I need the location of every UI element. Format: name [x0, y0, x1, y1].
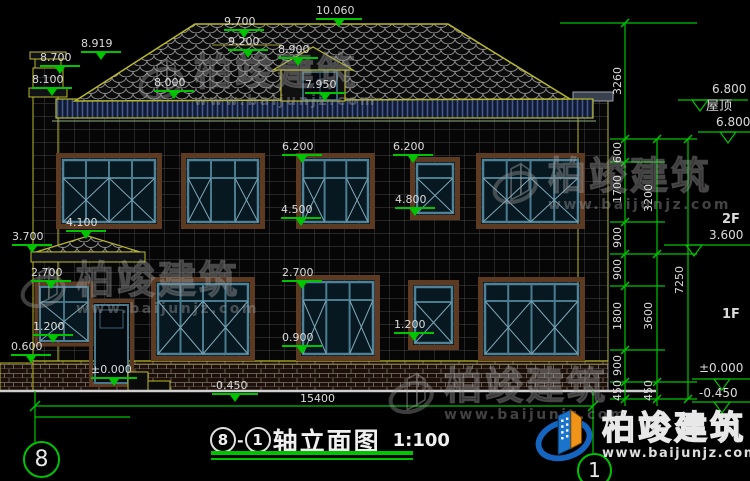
overall-dimension: 15400 — [300, 393, 335, 405]
chain-dim: 450 — [643, 380, 655, 401]
elevation-marker: -0.450 — [212, 380, 258, 407]
title-scale: 1:100 — [393, 430, 450, 451]
chain-dim: 600 — [612, 142, 624, 163]
floor-label: 2F — [722, 213, 740, 227]
watermark-brand: 柏竣建筑 — [444, 367, 627, 405]
window-2f-2 — [184, 156, 263, 227]
elevation-marker: 9.200 — [228, 36, 268, 63]
title-underline-thin — [211, 458, 413, 460]
elevation-marker: 4.100 — [66, 217, 106, 244]
elevation-marker: 8.100 — [32, 74, 72, 101]
axis-number: 8 — [35, 447, 49, 472]
chain-dim: 450 — [612, 380, 624, 401]
watermark-brand: 柏竣建筑 — [76, 261, 259, 299]
elevation-marker: 8.919 — [81, 38, 121, 65]
chain-dim: 900 — [612, 227, 624, 248]
title-underline — [211, 451, 413, 455]
elevation-marker: 2.700 — [282, 267, 322, 294]
elevation-marker: 1.200 — [394, 319, 434, 346]
level-label: ±0.000 — [699, 362, 743, 375]
chain-dim: 3260 — [612, 67, 624, 95]
watermark-url: www.baijunjz.com — [76, 301, 259, 317]
chain-dim: 1800 — [612, 302, 624, 330]
elevation-marker: 8.000 — [154, 77, 194, 104]
chain-dim: 1700 — [612, 175, 624, 203]
elevation-marker: 6.200 — [282, 141, 322, 168]
elevation-marker: 6.200 — [393, 141, 433, 168]
watermark-brand: 柏竣建筑 — [548, 157, 731, 195]
elevation-marker: ±0.000 — [91, 364, 137, 391]
level-label: 6.800 — [716, 116, 750, 129]
brand-logo-icon — [534, 404, 596, 468]
watermark-logo-icon — [386, 366, 438, 424]
elevation-drawing-sheet: 8.9198.7008.1009.70010.0609.2008.9008.00… — [0, 0, 750, 481]
watermark-url: www.baijunjz.com — [548, 197, 731, 213]
elevation-marker: 4.800 — [395, 194, 435, 221]
level-label: 3.600 — [709, 229, 743, 242]
chain-dim: 900 — [612, 355, 624, 376]
brand-name: 柏竣建筑 — [602, 411, 750, 444]
title-axis-start: 8 — [210, 427, 236, 453]
floor-label: 1F — [722, 308, 740, 322]
axis-bubble-8: 8 — [23, 441, 60, 478]
elevation-marker: 2.700 — [31, 267, 71, 294]
chain-dim: 7250 — [674, 266, 686, 294]
elevation-marker: 0.600 — [11, 341, 51, 368]
window-1f-4 — [481, 280, 583, 359]
level-label: 6.800 — [712, 83, 746, 96]
chain-dim: 3600 — [643, 302, 655, 330]
elevation-marker: 8.900 — [278, 44, 318, 71]
chain-dim: 900 — [612, 259, 624, 280]
title-axis-end: 1 — [245, 427, 271, 453]
elevation-marker: 4.500 — [281, 204, 321, 231]
level-label: 屋顶 — [706, 100, 732, 114]
brand-url: www.baijunjz.com — [602, 446, 750, 461]
elevation-marker: 3.700 — [12, 231, 52, 258]
chain-dim: 3200 — [643, 184, 655, 212]
watermark-url: www.baijunjz.com — [194, 93, 377, 109]
elevation-marker: 10.060 — [316, 5, 362, 32]
brand-logo: 柏竣建筑 www.baijunjz.com — [534, 404, 750, 468]
elevation-marker: 7.950 — [305, 79, 345, 106]
level-label: -0.450 — [699, 387, 738, 400]
watermark-logo-icon — [490, 156, 542, 214]
elevation-marker: 0.900 — [282, 332, 322, 359]
title-separator: - — [237, 431, 244, 450]
